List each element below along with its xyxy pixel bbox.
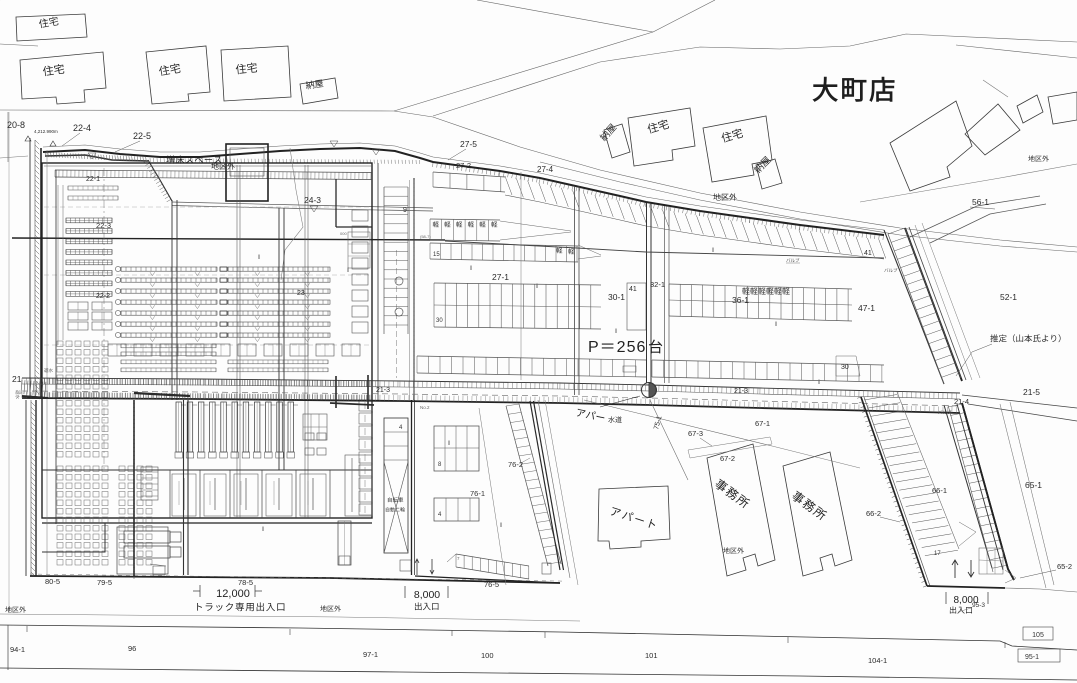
- svg-text:65-1: 65-1: [1025, 480, 1042, 490]
- svg-text:20-8: 20-8: [7, 120, 25, 130]
- svg-text:78-5: 78-5: [238, 578, 253, 587]
- svg-text:95-3: 95-3: [972, 602, 985, 609]
- svg-text:30: 30: [436, 318, 443, 324]
- svg-text:67-3: 67-3: [688, 429, 703, 438]
- svg-text:27-1: 27-1: [492, 272, 509, 282]
- svg-text:21-5: 21-5: [1023, 387, 1040, 397]
- svg-text:‖: ‖: [818, 380, 820, 386]
- svg-text:12,000: 12,000: [216, 588, 250, 600]
- svg-text:76-5: 76-5: [484, 580, 499, 589]
- svg-text:No.2: No.2: [420, 405, 430, 410]
- svg-text:22-4: 22-4: [73, 123, 91, 133]
- svg-text:52-1: 52-1: [1000, 292, 1017, 302]
- svg-text:76-2: 76-2: [508, 460, 523, 469]
- svg-text:‖: ‖: [712, 248, 714, 254]
- svg-text:4,212.990m: 4,212.990m: [34, 129, 58, 134]
- svg-text:22-2: 22-2: [96, 293, 110, 300]
- svg-text:101: 101: [645, 651, 658, 660]
- svg-text:15: 15: [433, 252, 440, 258]
- svg-text:‖: ‖: [448, 441, 450, 447]
- svg-text:94-1: 94-1: [10, 645, 25, 654]
- svg-text:79-5: 79-5: [97, 578, 112, 587]
- svg-text:17: 17: [934, 551, 941, 557]
- svg-text:‖: ‖: [536, 284, 538, 290]
- svg-text:66-1: 66-1: [932, 486, 947, 495]
- svg-text:41: 41: [864, 250, 872, 257]
- svg-text:105: 105: [1032, 632, 1044, 639]
- svg-text:41: 41: [629, 286, 637, 293]
- svg-text:30: 30: [841, 364, 849, 371]
- svg-text:36-1: 36-1: [732, 295, 749, 305]
- svg-text:80-5: 80-5: [45, 577, 60, 586]
- svg-text:‖: ‖: [347, 268, 349, 274]
- svg-text:96: 96: [128, 644, 136, 653]
- svg-text:30-1: 30-1: [608, 292, 625, 302]
- svg-text:‖: ‖: [470, 266, 472, 272]
- svg-text:9: 9: [403, 207, 407, 214]
- svg-text:104-1: 104-1: [868, 656, 887, 665]
- svg-text:27-2: 27-2: [456, 161, 471, 170]
- svg-text:27-5: 27-5: [460, 139, 477, 149]
- svg-text:100: 100: [481, 651, 494, 660]
- svg-text:‖: ‖: [262, 527, 264, 533]
- svg-text:67-2: 67-2: [720, 454, 735, 463]
- svg-text:24-3: 24-3: [304, 195, 321, 205]
- svg-text:66-2: 66-2: [866, 509, 881, 518]
- svg-text:67-1: 67-1: [755, 419, 770, 428]
- svg-text:95-1: 95-1: [1025, 654, 1039, 661]
- svg-text:‖: ‖: [775, 322, 777, 328]
- svg-text:22-3: 22-3: [96, 221, 111, 230]
- svg-text:76-1: 76-1: [470, 489, 485, 498]
- svg-text:47-1: 47-1: [858, 303, 875, 313]
- svg-text:32-1: 32-1: [650, 280, 665, 289]
- svg-text:22-1: 22-1: [86, 176, 100, 183]
- svg-text:8,000: 8,000: [414, 589, 440, 601]
- svg-text:‖: ‖: [500, 523, 502, 529]
- svg-text:27-4: 27-4: [537, 165, 554, 174]
- svg-text:‖: ‖: [258, 255, 260, 261]
- svg-text:21-4: 21-4: [954, 397, 969, 406]
- svg-text:21-3: 21-3: [734, 388, 748, 395]
- svg-text:21-3: 21-3: [376, 387, 390, 394]
- svg-text:000: 000: [340, 231, 347, 236]
- svg-text:21: 21: [12, 374, 22, 384]
- svg-text:P＝256: P＝256: [588, 339, 646, 356]
- svg-text:23: 23: [297, 290, 305, 297]
- svg-text:97-1: 97-1: [363, 650, 378, 659]
- svg-text:56-1: 56-1: [972, 197, 989, 207]
- svg-text:65-2: 65-2: [1057, 562, 1072, 571]
- svg-text:(58-7): (58-7): [420, 234, 431, 239]
- svg-text:22-5: 22-5: [133, 131, 151, 141]
- svg-text:‖: ‖: [615, 329, 617, 335]
